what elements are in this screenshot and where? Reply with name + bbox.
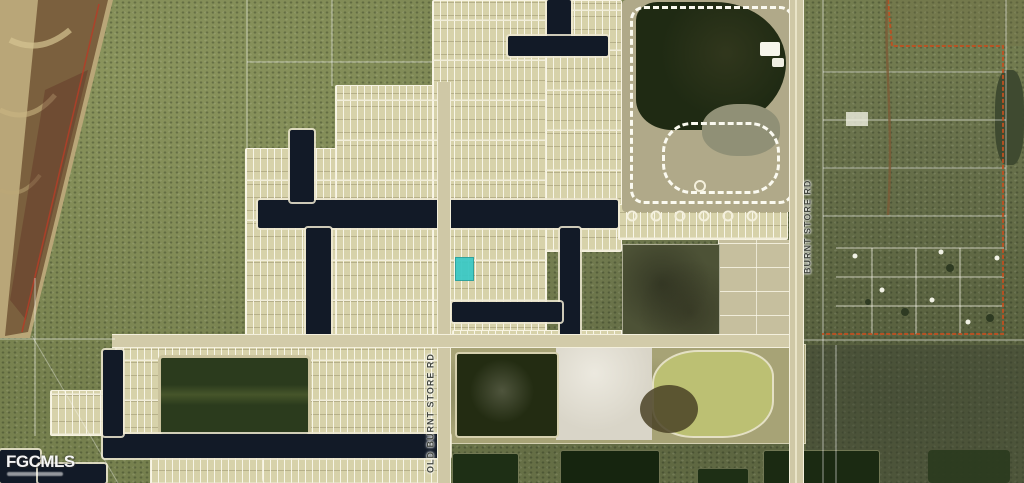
ranchette-buildings bbox=[846, 112, 1000, 325]
mls-watermark: FGCMLS bbox=[6, 452, 75, 472]
ranchette-grid bbox=[836, 248, 1004, 334]
shoreline-strip bbox=[0, 0, 118, 483]
culdesac-bulbs bbox=[628, 181, 757, 221]
map-overlay-lines bbox=[0, 0, 1024, 483]
dirt-trail bbox=[886, 0, 890, 215]
satellite-map[interactable]: OLD BURNT STORE RD BURNT STORE RD FGCMLS bbox=[0, 0, 1024, 483]
parcel-boundary-orange bbox=[822, 0, 1003, 334]
subject-property-marker[interactable] bbox=[455, 257, 474, 281]
mls-watermark-subtext bbox=[7, 472, 63, 476]
road-label-burnt-store: BURNT STORE RD bbox=[801, 163, 814, 291]
section-lines bbox=[0, 0, 1024, 483]
road-label-old-burnt-store: OLD BURNT STORE RD bbox=[424, 343, 437, 483]
